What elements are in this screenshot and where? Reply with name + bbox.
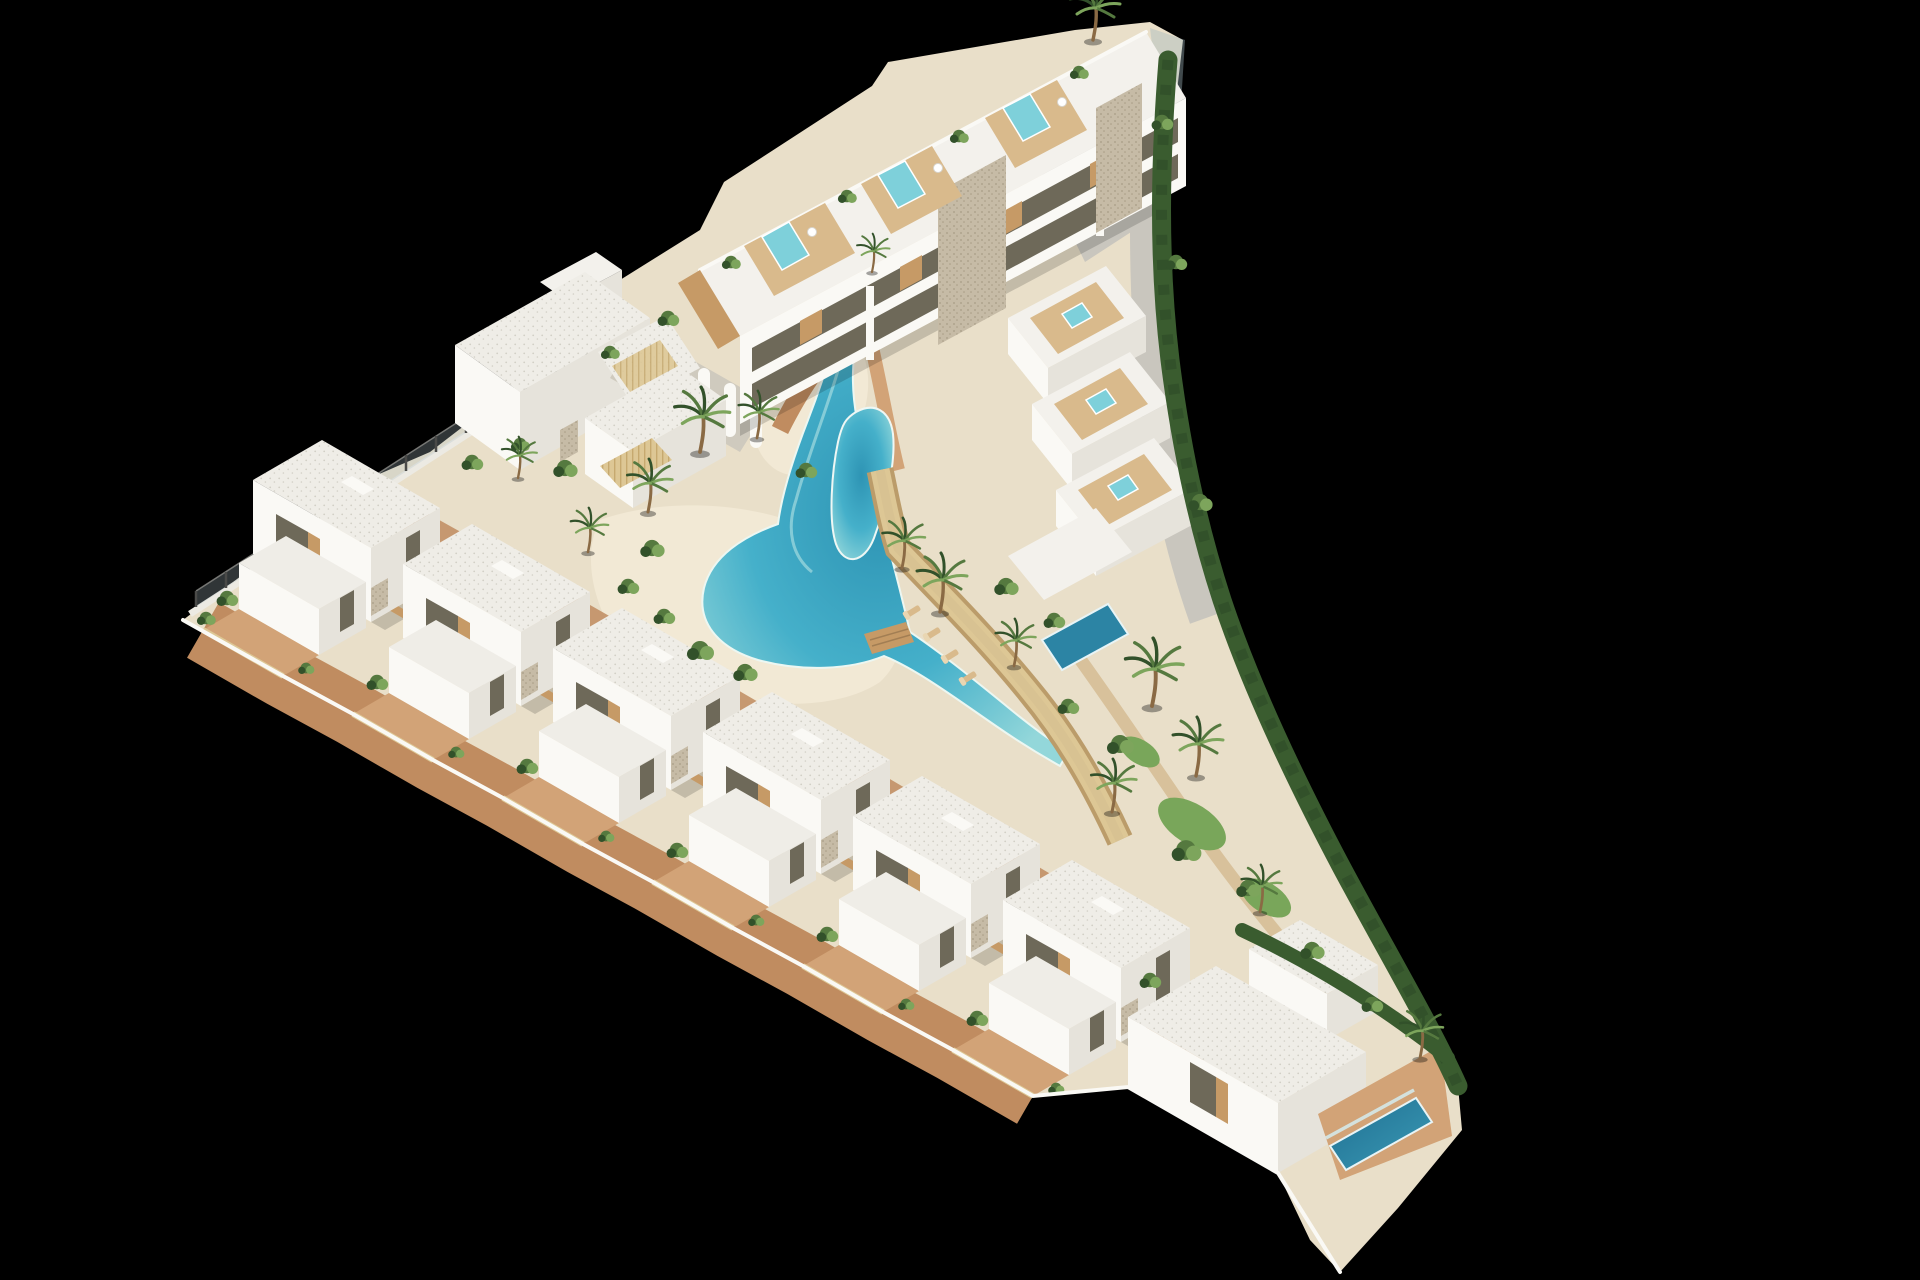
roof-furniture [934, 164, 943, 173]
compound-shutter [1216, 1077, 1228, 1124]
block-stone-core [1096, 83, 1142, 233]
roof-furniture [808, 228, 817, 237]
roof-furniture [1058, 98, 1067, 107]
aerial-render [0, 0, 1920, 1280]
